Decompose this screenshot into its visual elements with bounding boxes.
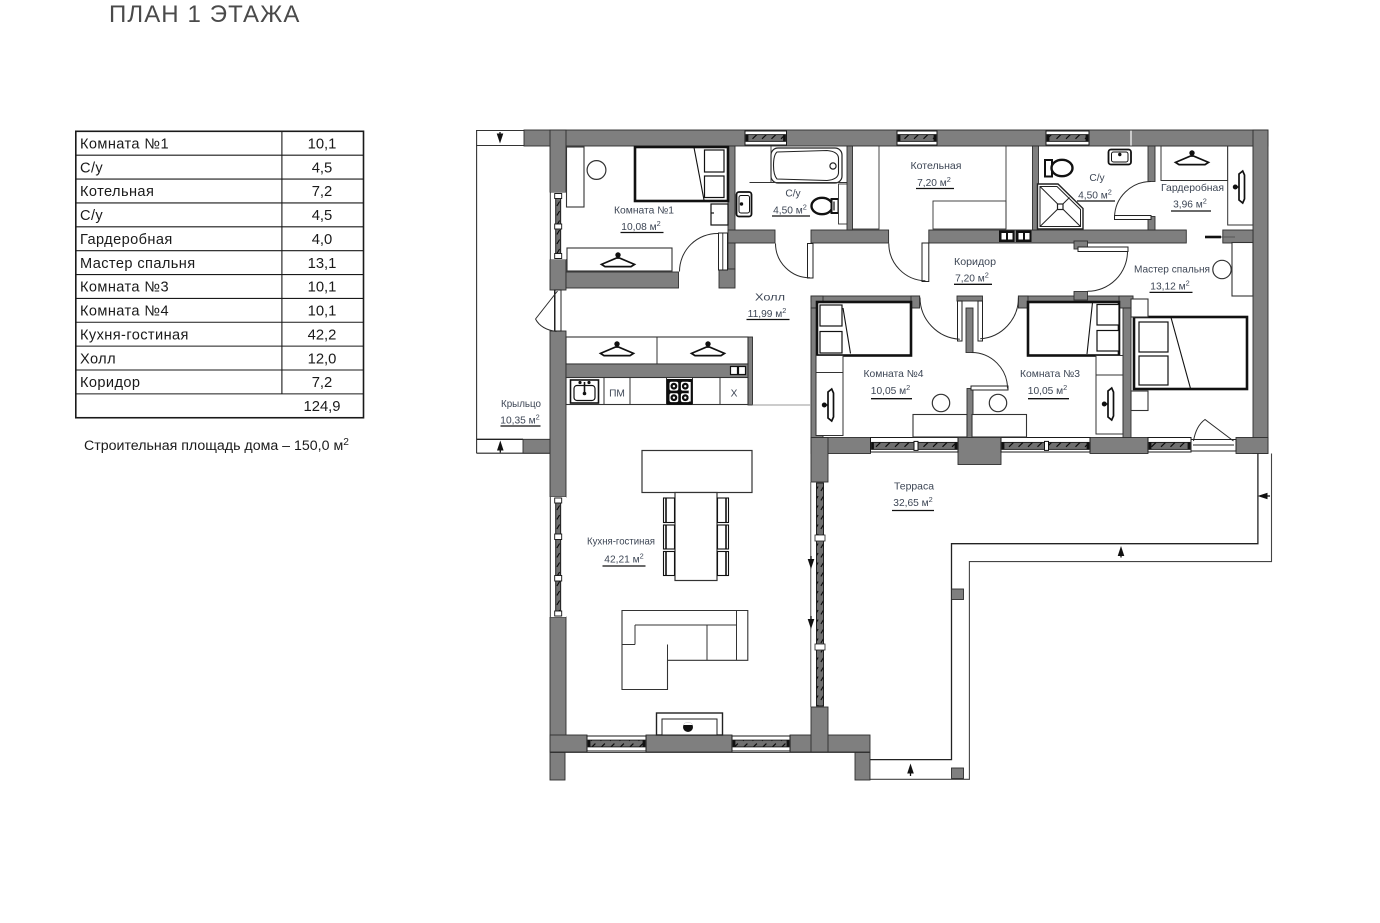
svg-text:4,50 м2: 4,50 м2: [1078, 188, 1112, 202]
svg-text:ПЛАН 1 ЭТАЖА: ПЛАН 1 ЭТАЖА: [109, 1, 301, 28]
svg-text:Холл: Холл: [755, 293, 785, 304]
svg-text:Холл: Холл: [80, 351, 116, 367]
svg-text:10,08 м2: 10,08 м2: [621, 219, 660, 233]
svg-text:С/у: С/у: [1089, 173, 1105, 184]
svg-text:Строительная площадь дома – 15: Строительная площадь дома – 150,0 м2: [84, 437, 349, 454]
svg-text:10,1: 10,1: [308, 136, 337, 152]
svg-text:С/у: С/у: [785, 189, 801, 200]
svg-text:Кухня-гостиная: Кухня-гостиная: [587, 537, 655, 548]
svg-text:Терраса: Терраса: [894, 482, 934, 493]
svg-text:X: X: [731, 389, 738, 400]
svg-text:10,35 м2: 10,35 м2: [500, 413, 539, 427]
svg-text:13,1: 13,1: [308, 256, 337, 272]
svg-text:Котельная: Котельная: [80, 184, 154, 200]
svg-text:42,21 м2: 42,21 м2: [604, 552, 643, 566]
svg-text:Комната №4: Комната №4: [80, 304, 169, 320]
svg-text:ПМ: ПМ: [609, 389, 625, 400]
svg-text:Котельная: Котельная: [911, 161, 962, 172]
svg-text:10,1: 10,1: [308, 304, 337, 320]
svg-text:42,2: 42,2: [308, 327, 337, 343]
svg-text:10,05 м2: 10,05 м2: [1028, 383, 1067, 397]
svg-text:С/у: С/у: [80, 208, 103, 224]
svg-text:С/у: С/у: [80, 160, 103, 176]
svg-text:Гардеробная: Гардеробная: [1161, 182, 1224, 194]
svg-text:Мастер спальня: Мастер спальня: [1134, 265, 1210, 276]
svg-text:13,12 м2: 13,12 м2: [1150, 279, 1189, 293]
svg-text:Крыльцо: Крыльцо: [501, 399, 541, 410]
svg-text:12,0: 12,0: [308, 351, 337, 367]
svg-text:Коридор: Коридор: [80, 375, 140, 391]
svg-text:10,1: 10,1: [308, 280, 337, 296]
svg-text:7,20 м2: 7,20 м2: [955, 271, 989, 285]
svg-text:7,20 м2: 7,20 м2: [917, 175, 951, 189]
svg-text:Мастер спальня: Мастер спальня: [80, 256, 196, 272]
svg-text:Комната №1: Комната №1: [80, 136, 169, 152]
svg-text:7,2: 7,2: [312, 184, 333, 200]
svg-text:Комната №3: Комната №3: [1020, 369, 1080, 380]
svg-text:7,2: 7,2: [312, 375, 333, 391]
svg-text:32,65 м2: 32,65 м2: [893, 495, 932, 509]
svg-text:Гардеробная: Гардеробная: [80, 232, 173, 248]
svg-text:4,50 м2: 4,50 м2: [773, 203, 807, 217]
svg-text:3,96 м2: 3,96 м2: [1173, 197, 1207, 211]
svg-text:Кухня-гостиная: Кухня-гостиная: [80, 327, 189, 343]
svg-text:4,5: 4,5: [312, 160, 333, 176]
svg-text:Комната №4: Комната №4: [864, 369, 924, 380]
svg-text:11,99 м2: 11,99 м2: [748, 306, 787, 320]
svg-text:Комната №1: Комната №1: [614, 206, 674, 217]
svg-text:Коридор: Коридор: [954, 257, 996, 268]
svg-text:10,05 м2: 10,05 м2: [871, 383, 910, 397]
svg-text:124,9: 124,9: [303, 399, 340, 415]
svg-text:Комната №3: Комната №3: [80, 280, 169, 296]
svg-text:4,0: 4,0: [312, 232, 333, 248]
svg-text:4,5: 4,5: [312, 208, 333, 224]
